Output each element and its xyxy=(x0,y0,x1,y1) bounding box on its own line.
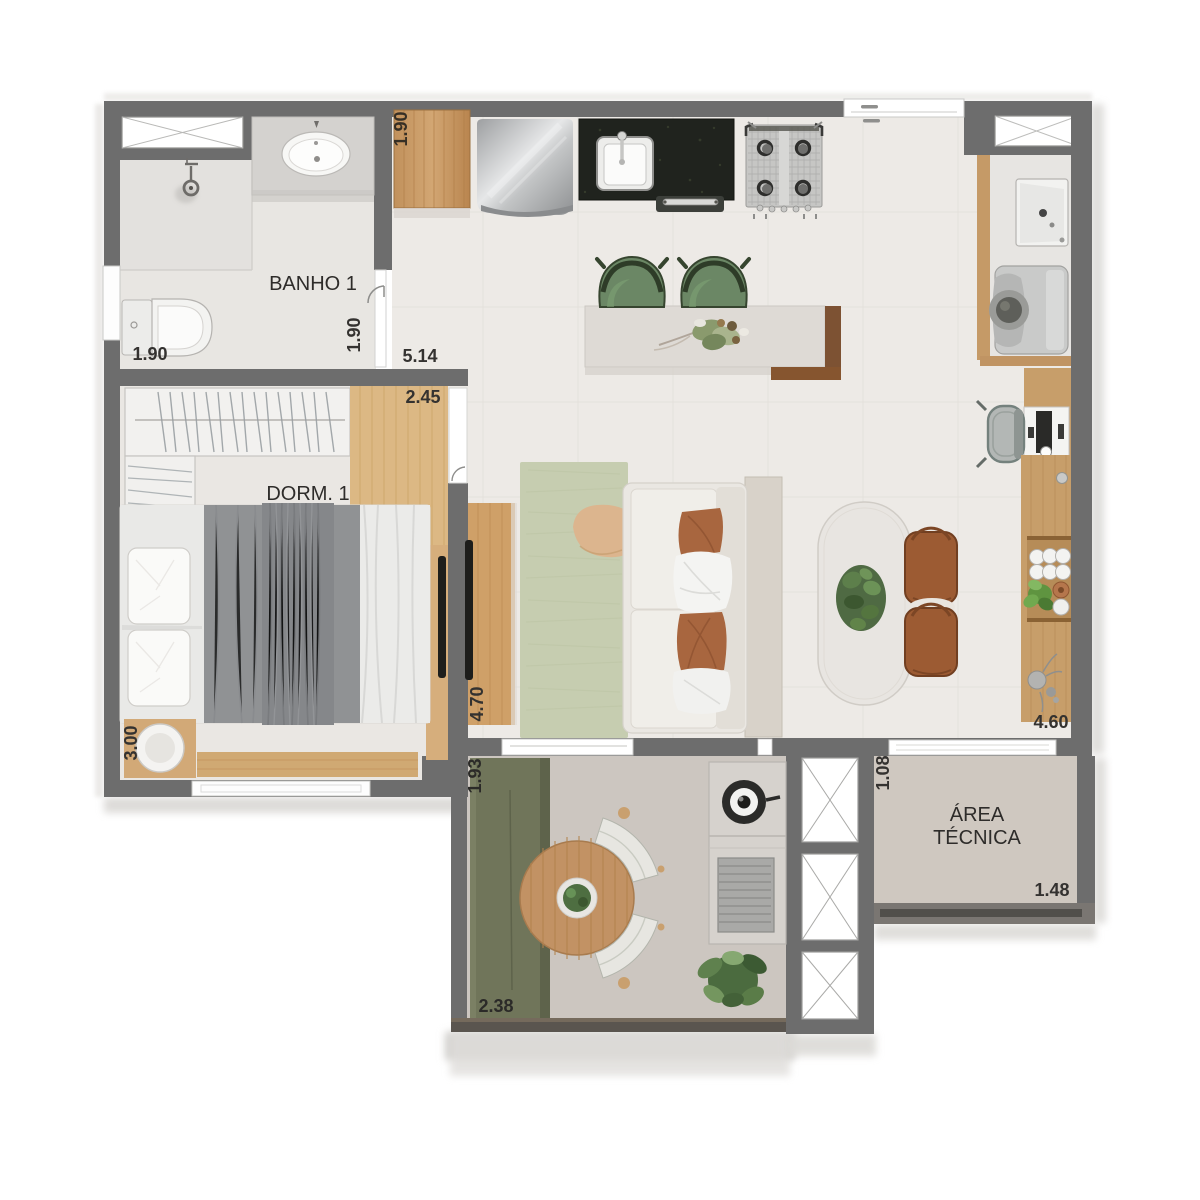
svg-text:1.08: 1.08 xyxy=(873,755,893,790)
svg-text:ÁREA: ÁREA xyxy=(950,803,1005,826)
svg-text:2.38: 2.38 xyxy=(478,996,513,1016)
svg-text:1.93: 1.93 xyxy=(465,758,485,793)
svg-text:1.48: 1.48 xyxy=(1034,880,1069,900)
svg-text:1.90: 1.90 xyxy=(391,111,411,146)
svg-text:5.14: 5.14 xyxy=(402,346,437,366)
svg-text:1.90: 1.90 xyxy=(132,344,167,364)
svg-text:DORM. 1: DORM. 1 xyxy=(266,483,349,505)
svg-text:3.00: 3.00 xyxy=(121,725,141,760)
svg-text:2.45: 2.45 xyxy=(405,387,440,407)
svg-text:4.70: 4.70 xyxy=(467,686,487,721)
svg-text:1.90: 1.90 xyxy=(344,317,364,352)
svg-text:BANHO 1: BANHO 1 xyxy=(269,273,357,295)
svg-text:4.60: 4.60 xyxy=(1033,712,1068,732)
svg-text:TÉCNICA: TÉCNICA xyxy=(933,826,1021,849)
